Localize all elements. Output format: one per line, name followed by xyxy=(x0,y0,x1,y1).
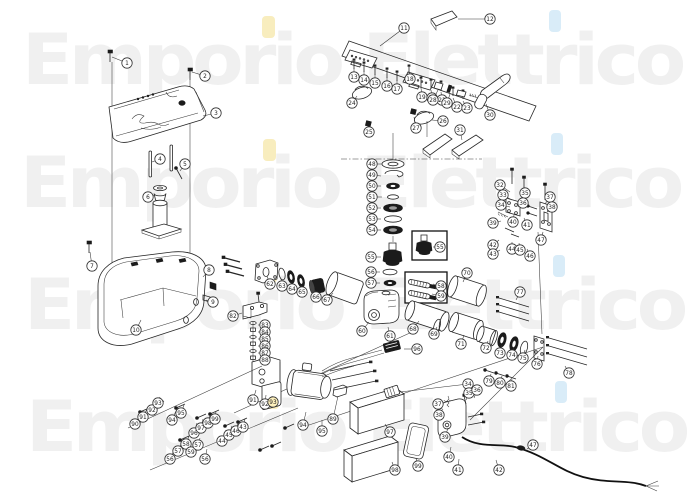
svg-text:94: 94 xyxy=(299,423,307,429)
svg-text:18: 18 xyxy=(406,77,414,83)
svg-text:41: 41 xyxy=(523,223,531,229)
svg-text:73: 73 xyxy=(496,351,504,357)
svg-text:55: 55 xyxy=(367,255,375,261)
watermark-accent-dot xyxy=(263,139,276,161)
svg-text:40: 40 xyxy=(445,455,453,461)
svg-text:3: 3 xyxy=(214,111,218,117)
callout-balloon: 25 xyxy=(364,127,374,137)
pump-block xyxy=(364,290,399,324)
watermark-accent-dot xyxy=(553,255,565,277)
hex-nut xyxy=(365,121,371,127)
svg-text:59: 59 xyxy=(437,294,445,300)
svg-text:47: 47 xyxy=(537,238,545,244)
callout-balloon: 75 xyxy=(518,350,528,363)
svg-text:8: 8 xyxy=(207,268,211,274)
svg-text:6: 6 xyxy=(146,195,150,201)
svg-text:31: 31 xyxy=(456,128,464,134)
svg-text:50: 50 xyxy=(368,184,376,190)
svg-text:64: 64 xyxy=(288,287,296,293)
svg-text:55: 55 xyxy=(436,245,444,251)
svg-text:13: 13 xyxy=(350,75,358,81)
watermark-accent-dot xyxy=(555,381,567,403)
svg-text:30: 30 xyxy=(486,113,494,119)
svg-text:7: 7 xyxy=(90,264,94,270)
svg-text:80: 80 xyxy=(496,381,504,387)
svg-text:95: 95 xyxy=(177,411,185,417)
svg-text:93: 93 xyxy=(154,401,162,407)
svg-text:38: 38 xyxy=(548,205,556,211)
svg-text:43: 43 xyxy=(489,252,497,258)
svg-text:91: 91 xyxy=(249,398,257,404)
watermark-accent-dot xyxy=(551,133,563,155)
svg-text:44: 44 xyxy=(218,439,226,445)
svg-text:54: 54 xyxy=(368,228,376,234)
svg-text:37: 37 xyxy=(546,195,554,201)
svg-text:56: 56 xyxy=(201,457,209,463)
svg-text:92: 92 xyxy=(148,408,156,414)
svg-text:96: 96 xyxy=(413,347,421,353)
callout-balloon: 43 xyxy=(488,249,500,259)
svg-text:56: 56 xyxy=(367,270,375,276)
svg-text:89: 89 xyxy=(329,417,337,423)
svg-text:28: 28 xyxy=(429,98,437,104)
callout-balloon: 46 xyxy=(525,249,535,261)
svg-text:35: 35 xyxy=(521,191,529,197)
svg-text:53: 53 xyxy=(368,217,376,223)
callout-balloon: 45 xyxy=(515,243,525,255)
svg-text:95: 95 xyxy=(318,429,326,435)
diagram-canvas: Emporio ElettricoEmporio ElettricoEmpori… xyxy=(0,0,694,500)
svg-text:56: 56 xyxy=(166,457,174,463)
svg-text:15: 15 xyxy=(371,81,379,87)
svg-text:36: 36 xyxy=(519,201,527,207)
svg-text:59: 59 xyxy=(187,450,195,456)
svg-text:5: 5 xyxy=(183,162,187,168)
svg-text:43: 43 xyxy=(239,425,247,431)
callout-balloon: 31 xyxy=(455,125,465,140)
svg-text:34: 34 xyxy=(497,203,505,209)
svg-text:81: 81 xyxy=(507,384,515,390)
svg-text:90: 90 xyxy=(131,422,139,428)
svg-text:75: 75 xyxy=(519,356,527,362)
callout-balloon: 79 xyxy=(484,374,494,386)
callout-balloon: 78 xyxy=(564,366,574,378)
svg-text:99: 99 xyxy=(211,417,219,423)
svg-text:58: 58 xyxy=(437,284,445,290)
svg-text:98: 98 xyxy=(391,468,399,474)
svg-text:49: 49 xyxy=(368,173,376,179)
svg-text:61: 61 xyxy=(386,334,394,340)
svg-text:97: 97 xyxy=(386,430,394,436)
svg-text:17: 17 xyxy=(393,87,401,93)
svg-text:12: 12 xyxy=(486,17,494,23)
svg-text:60: 60 xyxy=(358,329,366,335)
svg-text:74: 74 xyxy=(508,353,516,359)
callout-balloon: 81 xyxy=(506,379,516,391)
watermark-accent-dot xyxy=(262,16,275,38)
svg-text:67: 67 xyxy=(323,298,331,304)
svg-text:11: 11 xyxy=(400,26,408,32)
svg-text:66: 66 xyxy=(312,295,320,301)
svg-text:62: 62 xyxy=(266,282,274,288)
callout-balloon: 38 xyxy=(434,410,444,420)
watermark-accent-dot xyxy=(549,10,561,32)
svg-text:16: 16 xyxy=(383,84,391,90)
svg-text:29: 29 xyxy=(443,101,451,107)
callout-balloon: 7 xyxy=(87,252,97,271)
svg-text:33: 33 xyxy=(499,193,507,199)
svg-text:23: 23 xyxy=(463,106,471,112)
svg-text:2: 2 xyxy=(203,74,207,80)
svg-text:26: 26 xyxy=(439,119,447,125)
svg-text:38: 38 xyxy=(435,413,443,419)
svg-text:45: 45 xyxy=(516,248,524,254)
svg-text:78: 78 xyxy=(565,371,573,377)
svg-text:41: 41 xyxy=(454,468,462,474)
svg-text:57: 57 xyxy=(174,449,182,455)
svg-text:76: 76 xyxy=(533,362,541,368)
svg-text:46: 46 xyxy=(526,254,534,260)
svg-text:88: 88 xyxy=(261,358,269,364)
svg-text:47: 47 xyxy=(529,443,537,449)
svg-text:9: 9 xyxy=(211,300,215,306)
callout-balloon: 55 xyxy=(366,252,381,262)
callout-balloon: 36 xyxy=(518,198,528,208)
svg-text:72: 72 xyxy=(482,346,490,352)
callout-balloon: 80 xyxy=(495,376,505,388)
watermark-text-row-2: Emporio Elettrico xyxy=(20,142,682,224)
svg-text:4: 4 xyxy=(158,157,162,163)
svg-text:63: 63 xyxy=(278,284,286,290)
exploded-parts-diagram: Emporio ElettricoEmporio ElettricoEmpori… xyxy=(0,0,694,500)
svg-text:82: 82 xyxy=(229,314,237,320)
callout-balloon: 54 xyxy=(367,225,381,235)
svg-text:79: 79 xyxy=(485,379,493,385)
svg-text:57: 57 xyxy=(194,443,202,449)
svg-text:25: 25 xyxy=(365,130,373,136)
svg-text:94: 94 xyxy=(168,418,176,424)
hex-nut xyxy=(410,109,416,115)
svg-text:1: 1 xyxy=(125,61,129,67)
svg-text:40: 40 xyxy=(509,220,517,226)
svg-text:22: 22 xyxy=(453,105,461,111)
svg-text:99: 99 xyxy=(414,464,422,470)
svg-text:14: 14 xyxy=(360,78,368,84)
svg-text:19: 19 xyxy=(418,95,426,101)
svg-text:51: 51 xyxy=(368,195,376,201)
svg-text:10: 10 xyxy=(132,328,140,334)
svg-text:57: 57 xyxy=(367,281,375,287)
svg-text:65: 65 xyxy=(298,290,306,296)
svg-text:42: 42 xyxy=(495,468,503,474)
svg-text:37: 37 xyxy=(434,402,442,408)
callout-balloon: 26 xyxy=(432,116,448,126)
svg-text:39: 39 xyxy=(441,435,449,441)
svg-text:69: 69 xyxy=(430,332,438,338)
svg-text:24: 24 xyxy=(348,101,356,107)
svg-text:34: 34 xyxy=(464,382,472,388)
svg-text:48: 48 xyxy=(368,162,376,168)
svg-text:77: 77 xyxy=(516,290,524,296)
svg-text:27: 27 xyxy=(412,126,420,132)
callout-balloon: 38 xyxy=(547,202,557,212)
svg-text:36: 36 xyxy=(473,388,481,394)
callout-balloon: 23 xyxy=(462,101,472,113)
svg-text:52: 52 xyxy=(368,206,376,212)
svg-text:32: 32 xyxy=(496,183,504,189)
svg-text:91: 91 xyxy=(139,415,147,421)
svg-text:39: 39 xyxy=(489,221,497,227)
svg-text:68: 68 xyxy=(409,327,417,333)
svg-text:70: 70 xyxy=(463,271,471,277)
svg-text:42: 42 xyxy=(489,243,497,249)
steam-valve xyxy=(383,236,402,266)
svg-text:71: 71 xyxy=(457,342,465,348)
callout-balloon: 47 xyxy=(536,232,546,245)
svg-text:93: 93 xyxy=(269,400,277,406)
